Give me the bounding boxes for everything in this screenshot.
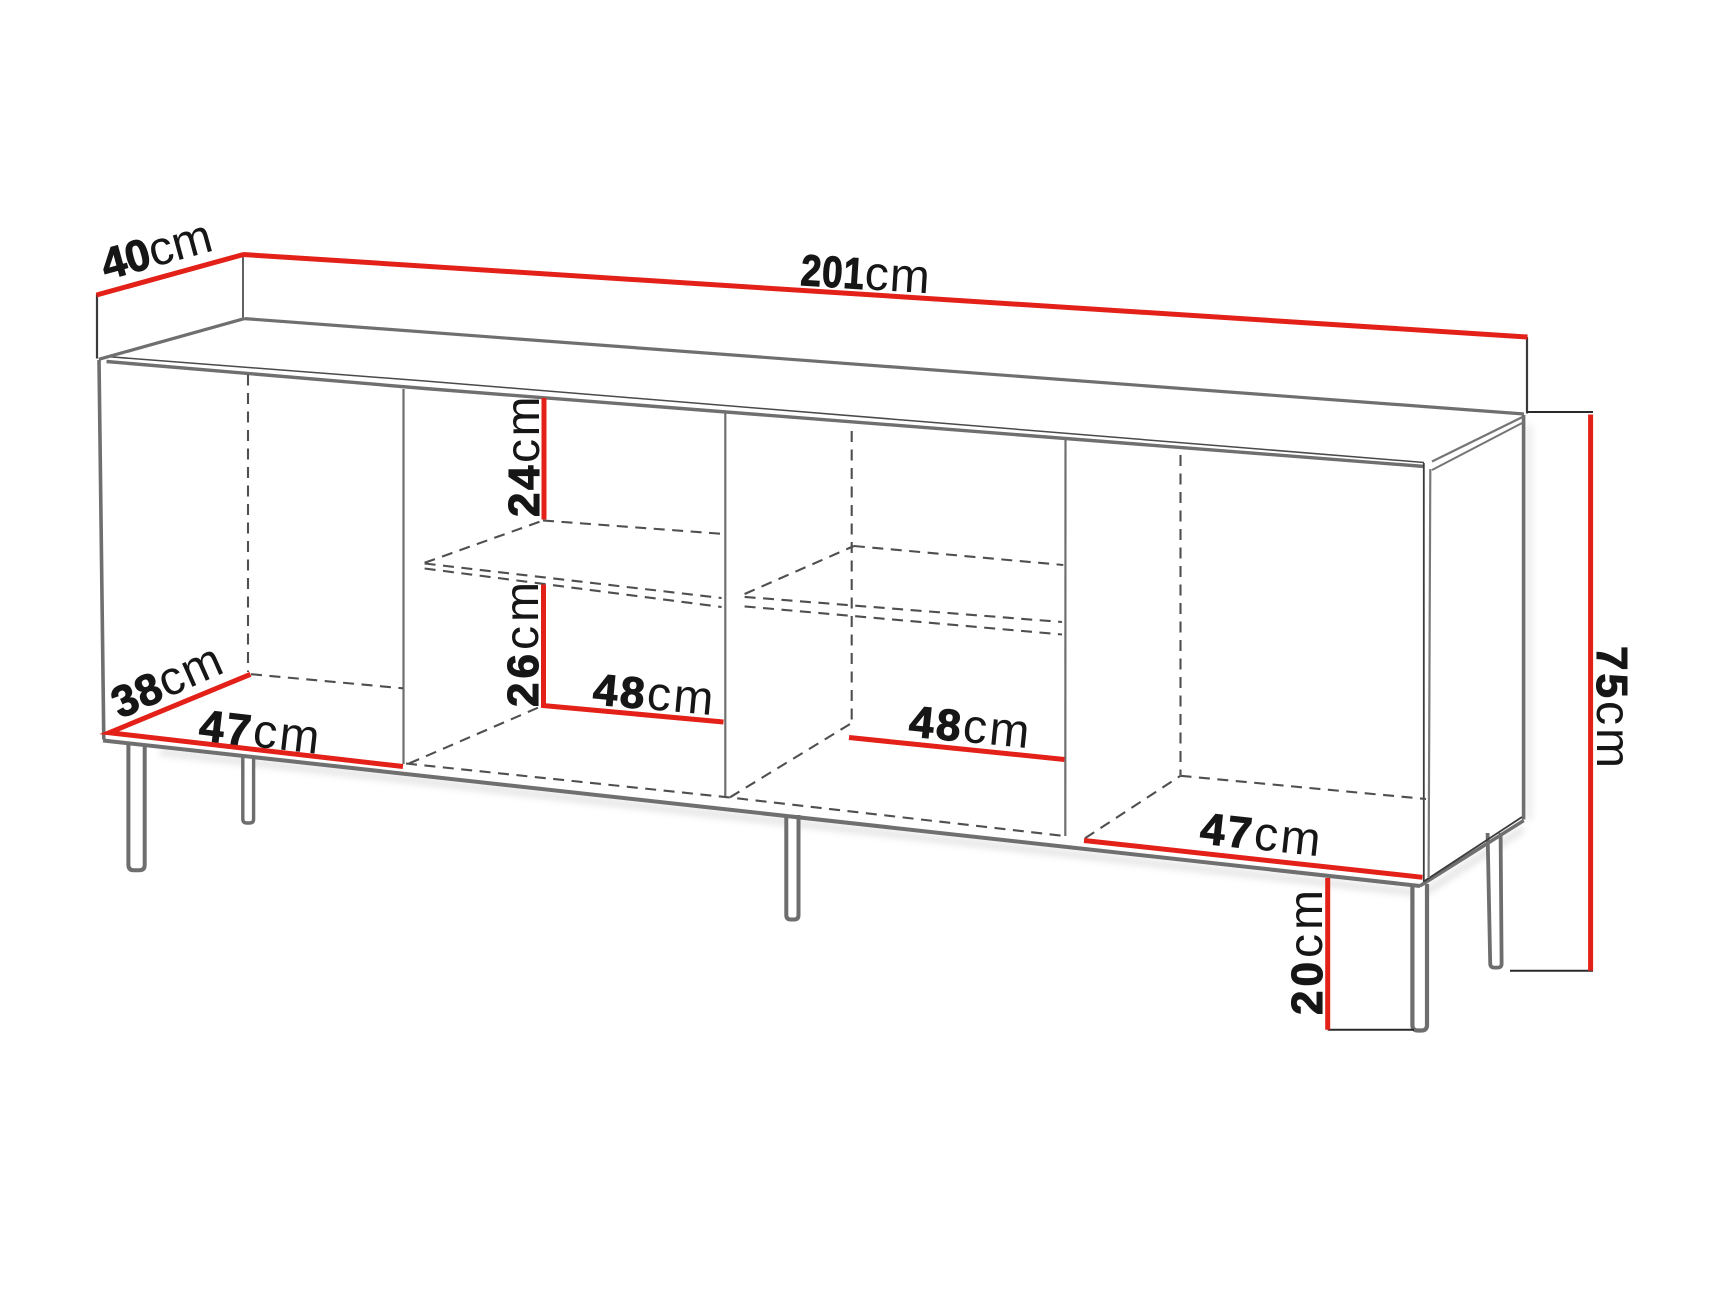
svg-text:201cm: 201cm: [799, 243, 932, 304]
svg-text:75cm: 75cm: [1586, 646, 1639, 771]
svg-text:24cm: 24cm: [497, 394, 550, 517]
svg-text:26cm: 26cm: [496, 578, 549, 707]
svg-text:20cm: 20cm: [1280, 886, 1333, 1015]
